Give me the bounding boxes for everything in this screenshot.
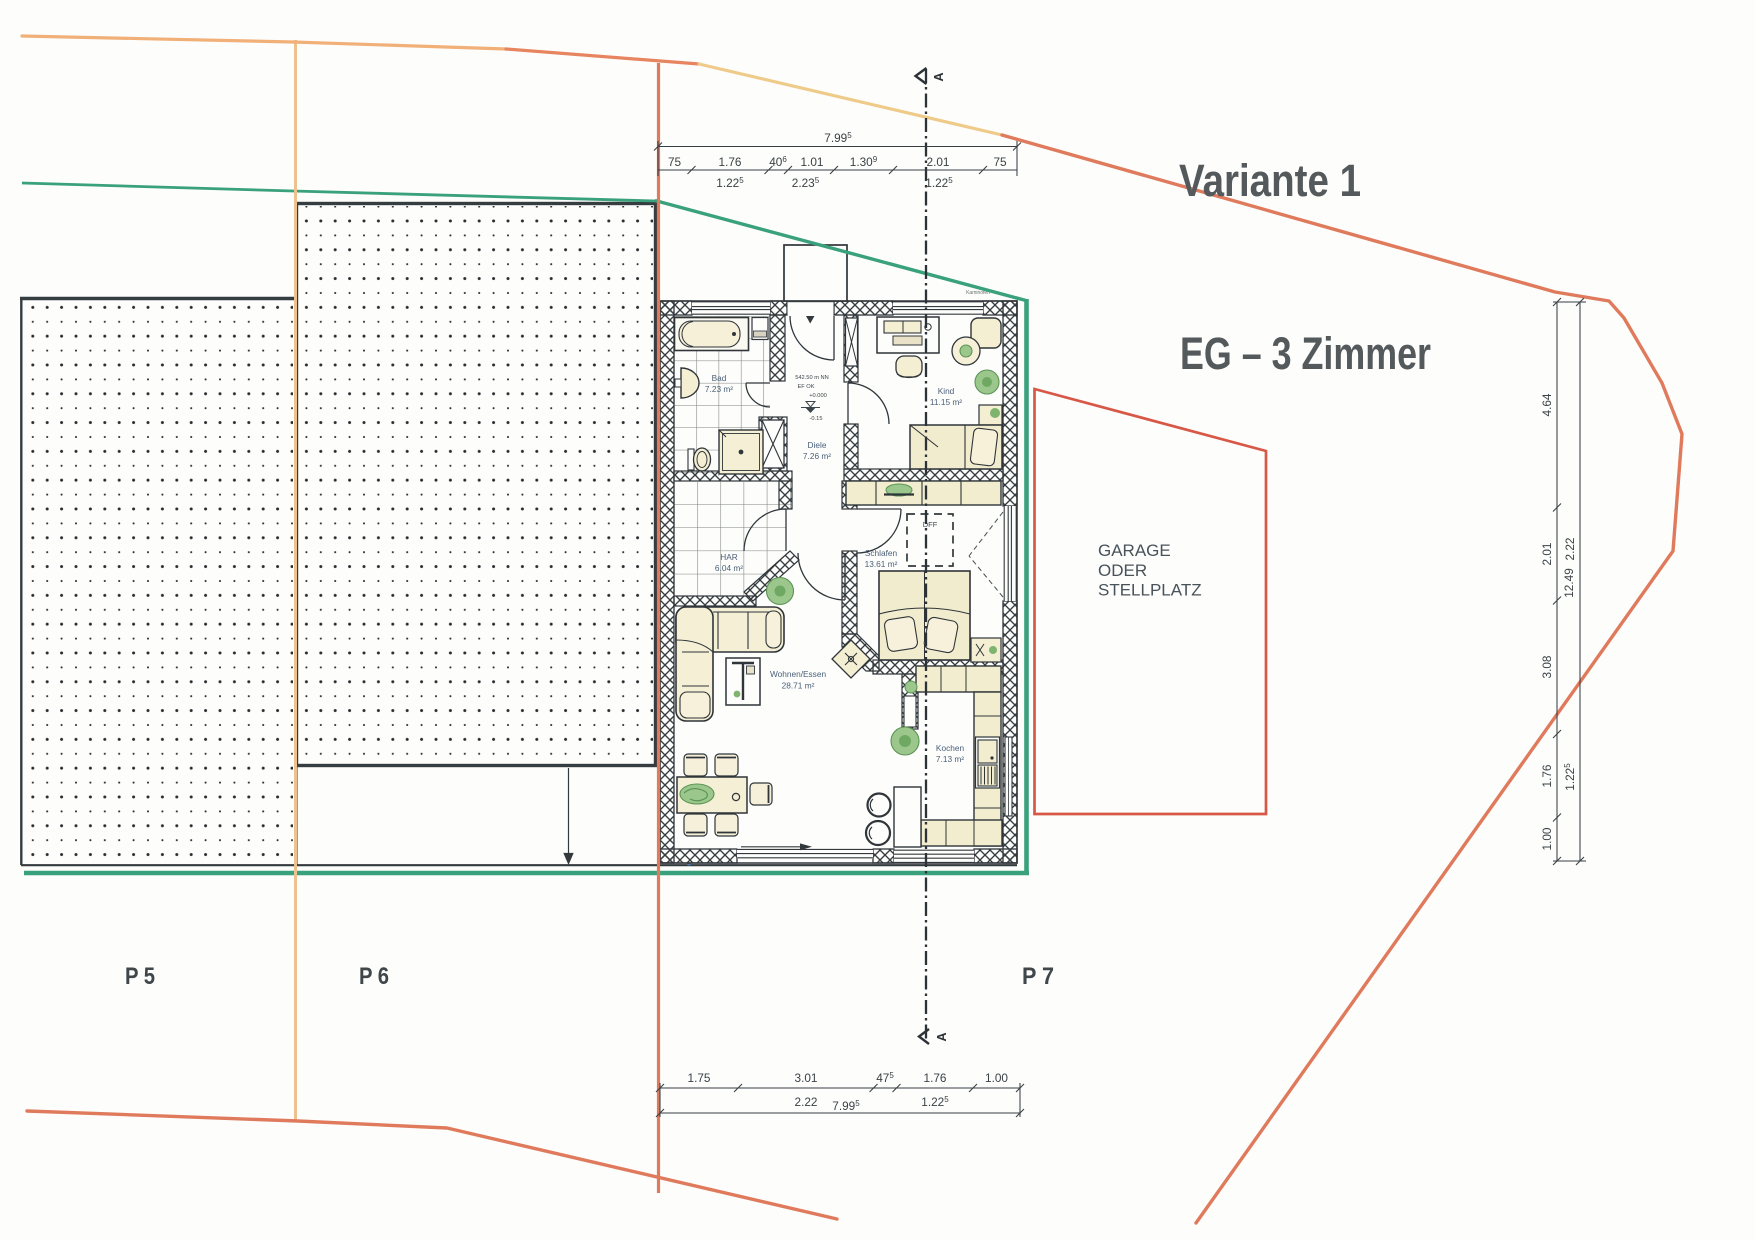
- svg-text:1.76: 1.76: [924, 1071, 947, 1085]
- svg-text:P 5: P 5: [125, 963, 155, 990]
- svg-text:1.75: 1.75: [688, 1071, 711, 1085]
- svg-text:28.71 m²: 28.71 m²: [782, 681, 815, 691]
- svg-text:GARAGE: GARAGE: [1098, 541, 1171, 560]
- svg-text:Schlafen: Schlafen: [865, 548, 898, 558]
- svg-text:EF OK: EF OK: [797, 384, 814, 390]
- svg-text:75: 75: [668, 155, 682, 169]
- svg-text:Wohnen/Essen: Wohnen/Essen: [770, 669, 827, 679]
- svg-text:-0.15: -0.15: [810, 416, 823, 422]
- svg-text:ODER: ODER: [1098, 561, 1147, 580]
- svg-text:7.13 m²: 7.13 m²: [936, 754, 964, 764]
- svg-text:2.22: 2.22: [795, 1095, 818, 1109]
- svg-text:Diele: Diele: [808, 440, 827, 450]
- svg-text:2.22: 2.22: [1563, 538, 1577, 561]
- svg-text:542.50 m NN: 542.50 m NN: [795, 375, 829, 381]
- svg-text:Kind: Kind: [938, 386, 955, 396]
- svg-text:7.23 m²: 7.23 m²: [705, 384, 733, 394]
- svg-text:A: A: [932, 72, 946, 81]
- svg-text:HAR: HAR: [720, 552, 738, 562]
- svg-text:1.76: 1.76: [1540, 764, 1554, 787]
- svg-text:7.26 m²: 7.26 m²: [803, 451, 831, 461]
- svg-text:3.08: 3.08: [1540, 655, 1554, 678]
- svg-text:Bad: Bad: [712, 373, 727, 383]
- svg-text:4.64: 4.64: [1540, 393, 1554, 416]
- svg-text:2.01: 2.01: [1540, 543, 1554, 566]
- svg-text:P 6: P 6: [359, 963, 389, 990]
- svg-text:Variante 1: Variante 1: [1179, 155, 1361, 206]
- svg-text:A: A: [935, 1032, 949, 1041]
- svg-text:1.76: 1.76: [719, 155, 742, 169]
- svg-text:1.00: 1.00: [1540, 827, 1554, 850]
- svg-text:13.61 m²: 13.61 m²: [865, 559, 898, 569]
- svg-text:6.04 m²: 6.04 m²: [715, 563, 743, 573]
- svg-text:2.01: 2.01: [927, 155, 950, 169]
- svg-text:1.00: 1.00: [985, 1071, 1008, 1085]
- svg-text:+0.000: +0.000: [809, 393, 827, 399]
- svg-text:EG – 3 Zimmer: EG – 3 Zimmer: [1180, 328, 1431, 379]
- svg-text:11.15 m²: 11.15 m²: [930, 397, 962, 407]
- svg-text:P 7: P 7: [1022, 963, 1054, 990]
- svg-text:3.01: 3.01: [795, 1071, 818, 1085]
- svg-text:75: 75: [993, 155, 1007, 169]
- svg-text:1.01: 1.01: [801, 155, 824, 169]
- svg-text:STELLPLATZ: STELLPLATZ: [1098, 581, 1202, 600]
- svg-text:Kochen: Kochen: [936, 743, 965, 753]
- svg-text:12.49: 12.49: [1562, 568, 1576, 598]
